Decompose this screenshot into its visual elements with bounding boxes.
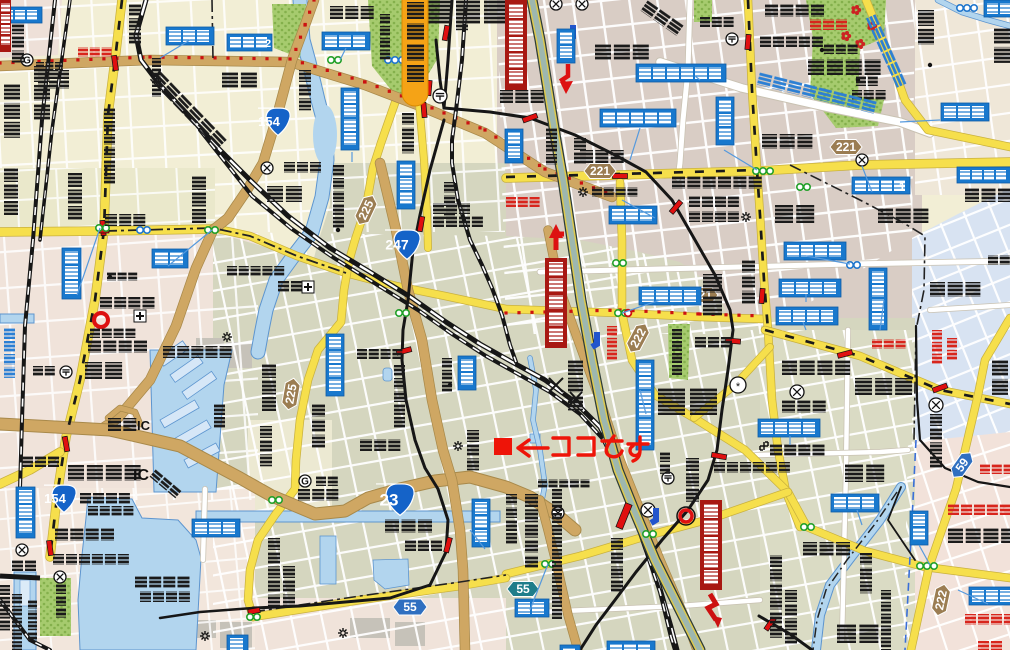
svg-text:G: G xyxy=(23,56,31,67)
svg-text:*: * xyxy=(736,381,741,393)
svg-text:G: G xyxy=(301,477,309,488)
svg-text:247: 247 xyxy=(385,237,409,253)
svg-text:55: 55 xyxy=(403,600,417,614)
svg-text:2: 2 xyxy=(265,38,271,50)
svg-text:221: 221 xyxy=(836,140,856,154)
svg-text:IC: IC xyxy=(137,418,151,433)
svg-text:IC: IC xyxy=(133,467,149,484)
svg-text:154: 154 xyxy=(258,114,280,129)
svg-text:154: 154 xyxy=(44,491,66,506)
svg-text:55: 55 xyxy=(516,582,530,596)
svg-text:1: 1 xyxy=(899,181,905,193)
svg-text:23: 23 xyxy=(380,491,399,510)
svg-text:221: 221 xyxy=(590,164,610,178)
